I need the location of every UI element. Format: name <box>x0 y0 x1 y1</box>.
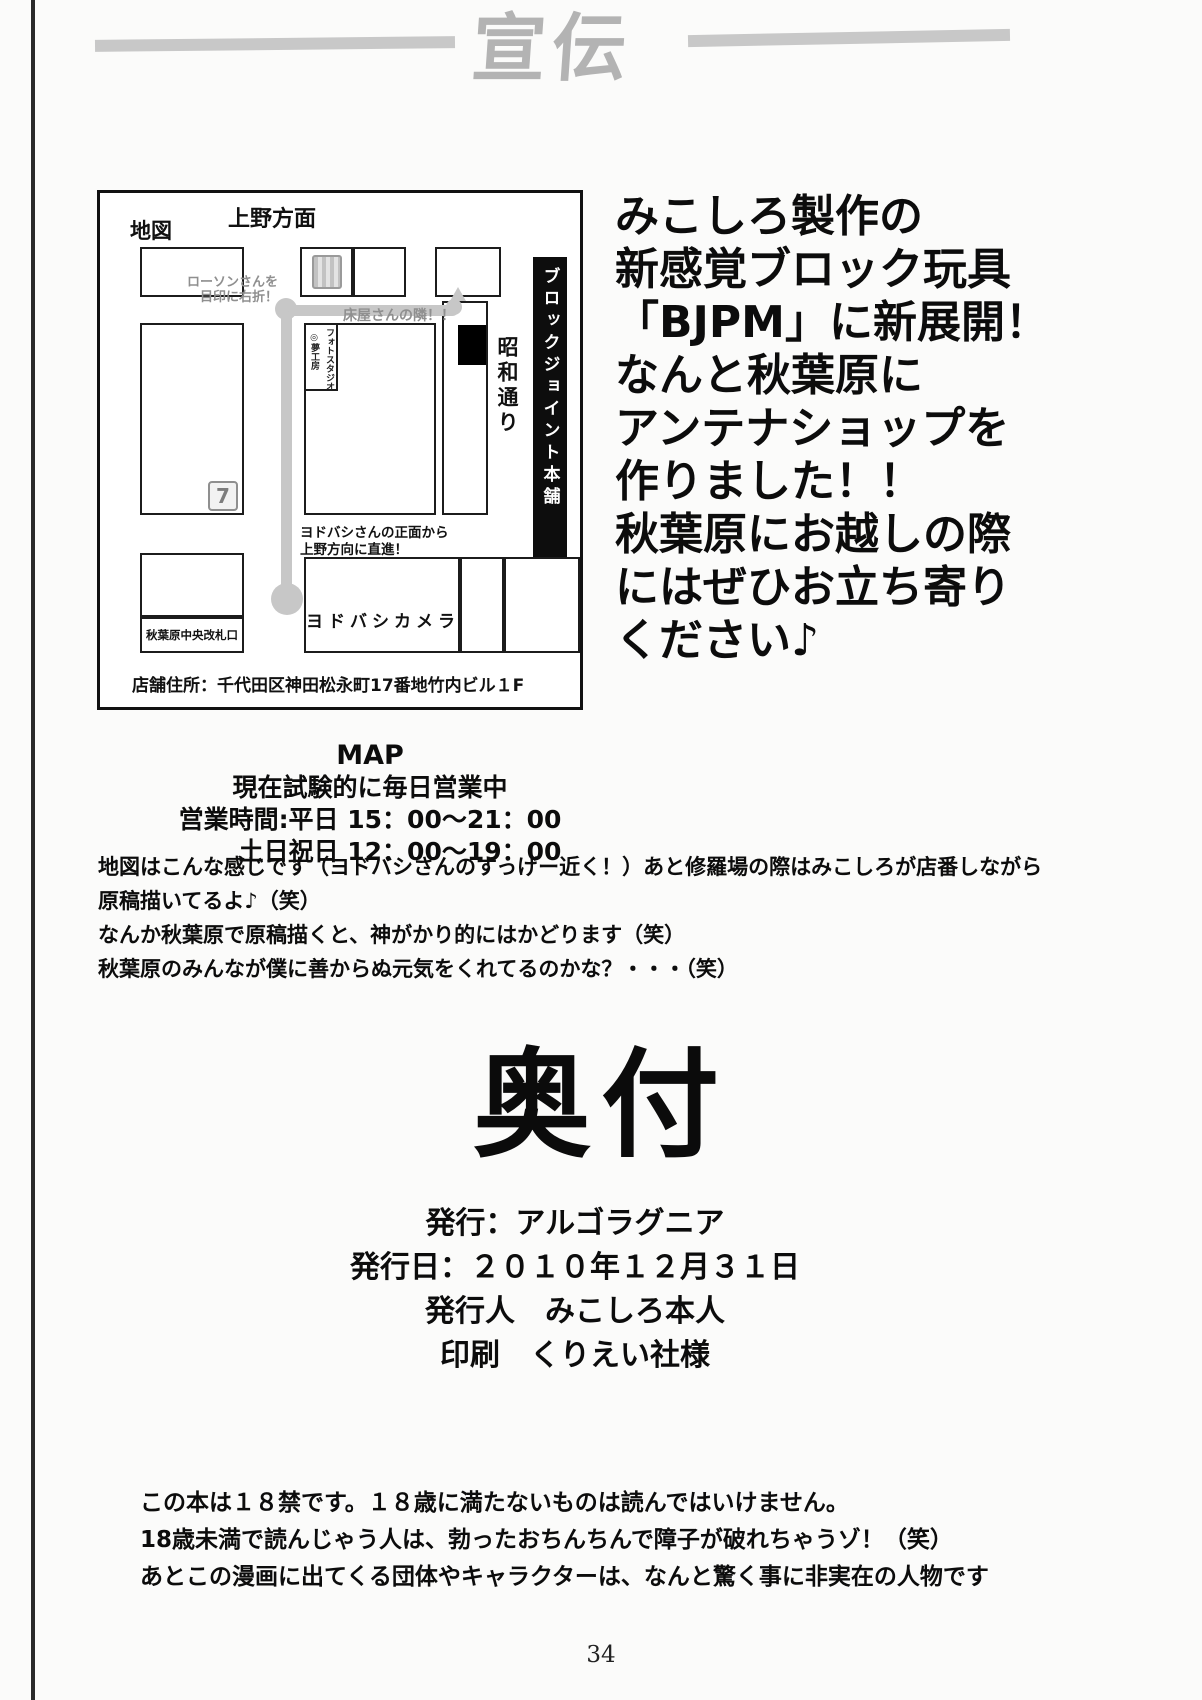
author-note-line: 秋葉原のみんなが僕に善からぬ元気をくれてるのかな？・・・（笑） <box>98 952 1118 986</box>
scanned-doujin-page: 宣伝 地図 上野方面 7 フォトスタジオ ◎夢工房 <box>0 0 1202 1700</box>
shop-map: 地図 上野方面 7 フォトスタジオ ◎夢工房 ローソンさんを 目印に <box>97 190 583 710</box>
map-info-heading: MAP <box>100 740 640 772</box>
station-gate-box: 秋葉原中央改札口 <box>140 617 244 653</box>
map-info-hours-weekday: 営業時間:平日 15：00～21：00 <box>100 804 640 836</box>
promo-line: 作りました！！ <box>615 455 1135 508</box>
lawson-note-line1: ローソンさんを <box>156 275 278 290</box>
shop-address: 店舗住所：千代田区神田松永町17番地竹内ビル１F <box>132 671 524 696</box>
yodobashi-label: ヨドバシカメラ <box>306 607 458 632</box>
yodobashi-note: ヨドバシさんの正面から 上野方向に直進！ <box>300 525 449 559</box>
disclaimer-line: あとこの漫画に出てくる団体やキャラクターは、なんと驚く事に非実在の人物です <box>140 1559 1140 1596</box>
author-note-line: なんか秋葉原で原稿描くと、神がかり的にはかどります（笑） <box>98 918 1118 952</box>
promo-line: 新感覚ブロック玩具 <box>615 243 1135 296</box>
map-building <box>140 553 244 617</box>
disclaimer-block: この本は１８禁です。１８歳に満たないものは読んではいけません。 18歳未満で読ん… <box>140 1485 1140 1596</box>
disclaimer-line: 18歳未満で読んじゃう人は、勃ったおちんちんで障子が破れちゃうゾ！（笑） <box>140 1522 1140 1559</box>
photo-studio-box: フォトスタジオ ◎夢工房 <box>304 323 338 391</box>
map-building <box>504 557 580 653</box>
shop-location-marker <box>458 325 486 365</box>
shop-banner: ブロックジョイント本舗 <box>533 257 567 565</box>
author-notes: 地図はこんな感じです（ヨドバシさんのすっげー近く！）あと修羅場の際はみこしろが店… <box>98 850 1118 986</box>
promo-line: なんと秋葉原に <box>615 349 1135 402</box>
colophon-block: 発行：アルゴラグニア 発行日：２０１０年１２月３１日 発行人 みこしろ本人 印刷… <box>0 1202 1150 1378</box>
shop-banner-label: ブロックジョイント本舗 <box>538 257 563 509</box>
map-building <box>435 247 501 297</box>
route-path-vertical <box>281 311 292 595</box>
promo-line: みこしろ製作の <box>615 190 1135 243</box>
colophon-heading: 奥付 <box>0 1040 1202 1170</box>
route-start-dot <box>271 583 303 615</box>
colophon-date: 発行日：２０１０年１２月３１日 <box>0 1246 1150 1290</box>
station-gate-label: 秋葉原中央改札口 <box>146 628 238 642</box>
author-note-line: 原稿描いてるよ♪（笑） <box>98 884 1118 918</box>
disclaimer-line: この本は１８禁です。１８歳に満たないものは読んではいけません。 <box>140 1485 1140 1522</box>
yodobashi-building: ヨドバシカメラ <box>304 557 460 653</box>
photo-studio-label-right: フォトスタジオ <box>324 328 334 391</box>
promo-line: にはぜひお立ち寄り <box>615 561 1135 614</box>
lawson-note: ローソンさんを 目印に右折！ <box>156 275 278 305</box>
promo-line: ください♪ <box>615 614 1135 667</box>
header-rule-right <box>688 29 1010 47</box>
header-rule-left <box>95 36 455 52</box>
map-building: 7 <box>140 323 244 515</box>
map-info-status: 現在試験的に毎日営業中 <box>100 772 640 804</box>
colophon-issuer: 発行人 みこしろ本人 <box>0 1290 1150 1334</box>
lawson-note-line2: 目印に右折！ <box>156 290 278 305</box>
map-title-label: 地図 <box>130 215 172 245</box>
promo-line: アンテナショップを <box>615 402 1135 455</box>
page-title: 宣伝 <box>469 12 634 86</box>
map-building <box>460 557 504 653</box>
colophon-publisher: 発行：アルゴラグニア <box>0 1202 1150 1246</box>
page-edge-line <box>31 0 35 1700</box>
ueno-direction-label: 上野方面 <box>228 201 316 233</box>
promo-text: みこしろ製作の 新感覚ブロック玩具 「BJPM」に新展開！ なんと秋葉原に アン… <box>615 190 1135 667</box>
map-info-block: MAP 現在試験的に毎日営業中 営業時間:平日 15：00～21：00 土日祝日… <box>100 740 640 868</box>
seven-eleven-logo-icon: 7 <box>208 481 238 511</box>
map-building <box>353 247 406 297</box>
showa-street-label: 昭和通り <box>492 336 522 436</box>
map-building-lawson <box>300 247 353 297</box>
photo-studio-label-left: ◎夢工房 <box>309 333 319 370</box>
author-note-line: 地図はこんな感じです（ヨドバシさんのすっげー近く！）あと修羅場の際はみこしろが店… <box>98 850 1118 884</box>
colophon-printer: 印刷 くりえい社様 <box>0 1334 1150 1378</box>
promo-line: 秋葉原にお越しの際 <box>615 508 1135 561</box>
barber-note: 床屋さんの隣！！ <box>343 309 455 324</box>
lawson-logo-icon <box>312 255 342 289</box>
promo-line: 「BJPM」に新展開！ <box>615 296 1135 349</box>
route-arrow-icon <box>450 287 466 301</box>
yodobashi-note-line1: ヨドバシさんの正面から <box>300 525 449 542</box>
page-number: 34 <box>0 1642 1202 1668</box>
